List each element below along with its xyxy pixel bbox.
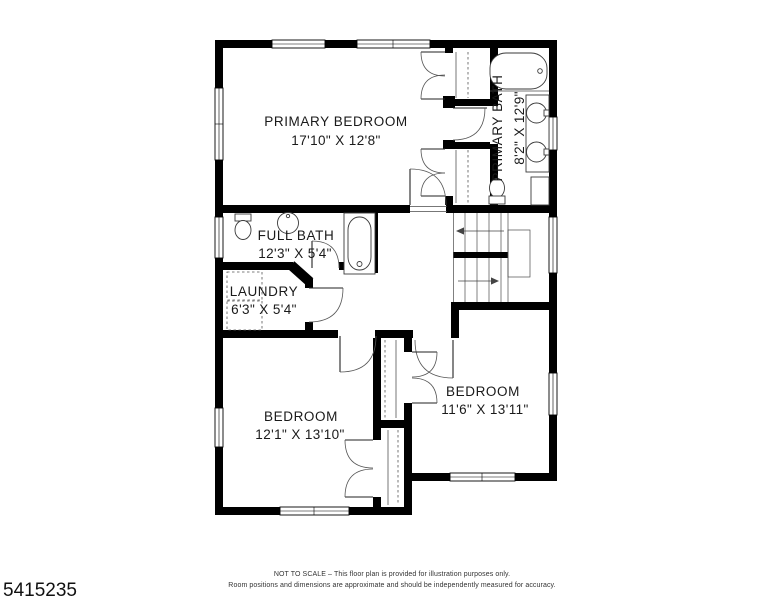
window: [549, 217, 557, 273]
floor-plan-page: PRIMARY BEDROOM 17'10" X 12'8" PRIMARY B…: [0, 0, 776, 600]
stair-direction-arrow-left-icon: [456, 227, 504, 234]
sink-faucet: [544, 149, 549, 155]
room-label-primary-bath: PRIMARY BATH: [490, 75, 505, 182]
room-dims-bedroom-right: 11'6" X 13'11": [441, 402, 528, 417]
room-dims-bedroom-left: 12'1" X 13'10": [255, 427, 344, 442]
footer-disclaimer-line2: Room positions and dimensions are approx…: [228, 582, 555, 589]
window: [280, 507, 349, 515]
window: [357, 40, 430, 48]
tub-faucet: [357, 262, 362, 267]
room-label-bedroom-right: BEDROOM: [446, 384, 520, 399]
walls-group: [215, 40, 557, 515]
toilet-bowl: [235, 221, 251, 240]
stair-direction-arrow-right-icon: [458, 277, 499, 284]
window: [272, 40, 325, 48]
windows-group: [215, 40, 557, 515]
window: [549, 373, 557, 415]
sink-faucet: [544, 110, 549, 116]
listing-id: 5415235: [3, 580, 77, 600]
sink-faucet: [286, 214, 289, 217]
toilet-tank: [235, 214, 251, 221]
floor-plan-svg: PRIMARY BEDROOM 17'10" X 12'8" PRIMARY B…: [0, 0, 776, 600]
window: [215, 408, 223, 447]
laundry-appliances: [227, 272, 262, 330]
room-dims-laundry: 6'3" X 5'4": [231, 302, 297, 317]
sink: [527, 142, 547, 162]
room-dims-primary-bedroom: 17'10" X 12'8": [291, 133, 380, 148]
room-dims-full-bath: 12'3" X 5'4": [258, 246, 332, 261]
footer: NOT TO SCALE – This floor plan is provid…: [3, 571, 556, 600]
window: [450, 473, 515, 481]
window: [215, 217, 223, 258]
window: [549, 117, 557, 150]
footer-disclaimer-line1: NOT TO SCALE – This floor plan is provid…: [274, 571, 510, 578]
room-label-full-bath: FULL BATH: [258, 228, 335, 243]
window: [215, 88, 223, 160]
toilet-tank: [489, 196, 505, 204]
room-label-laundry: LAUNDRY: [230, 284, 298, 299]
room-label-bedroom-left: BEDROOM: [264, 409, 338, 424]
cabinet: [531, 177, 549, 205]
sink: [527, 103, 547, 123]
tub-faucet: [538, 69, 543, 74]
room-dims-primary-bath: 8'2" X 12'9": [512, 91, 527, 165]
stair-landing: [508, 230, 530, 277]
room-label-primary-bedroom: PRIMARY BEDROOM: [264, 114, 408, 129]
